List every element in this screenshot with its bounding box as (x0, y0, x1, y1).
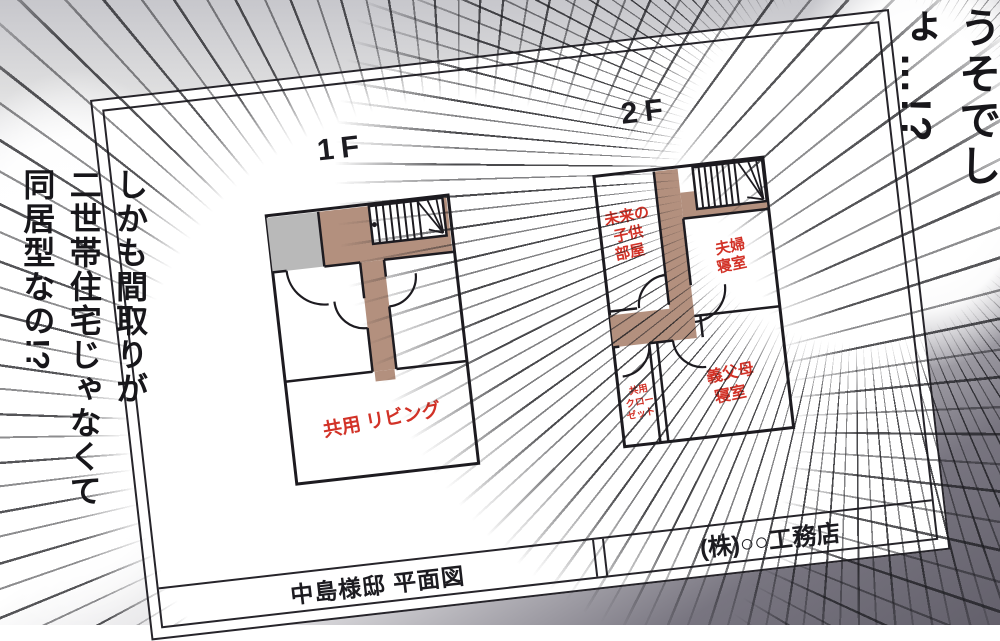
sheet-inner-frame: 中島様邸 平面図 (株)○○工務店 (102, 21, 938, 628)
speech-left: しかも間取りが 二世帯住宅じゃなくて 同居型なの!? (14, 168, 153, 580)
floor2-plan: 未来の 子供 部屋 夫婦 寝室 共用 クロー ゼット 義父母 寝室 (591, 154, 797, 450)
speech-right: うそでしょ…!? (886, 6, 1000, 306)
speech-left-line: 同居型なの!? (14, 168, 60, 580)
floor1-plan: 共用 リビング (263, 192, 482, 488)
floorplan-sheet: 中島様邸 平面図 (株)○○工務店 1F 2F (90, 9, 950, 641)
floor1-label: 1F (315, 129, 368, 168)
sheet-title: 中島様邸 平面図 (159, 540, 596, 626)
title-block: 中島様邸 平面図 (株)○○工務店 (159, 499, 936, 626)
speech-left-line: 二世帯住宅じゃなくて (60, 168, 106, 580)
company-name: (株)○○工務店 (604, 501, 936, 575)
floor2-label: 2F (619, 93, 672, 132)
entrance-area (266, 212, 324, 273)
floor2-stairs-icon (692, 159, 766, 209)
floor1-stairs-icon (369, 198, 447, 244)
speech-left-line: しかも間取りが (107, 168, 153, 580)
